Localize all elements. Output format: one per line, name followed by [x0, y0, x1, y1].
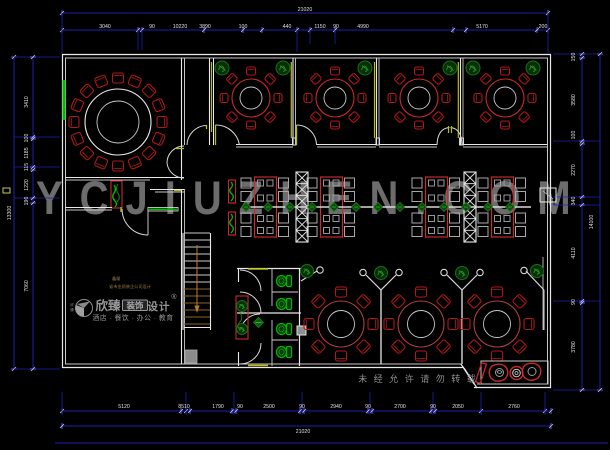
svg-text:440: 440 — [283, 24, 292, 30]
svg-text:3780: 3780 — [571, 341, 577, 353]
svg-text:4110: 4110 — [571, 247, 577, 258]
svg-text:欣臻: 欣臻 — [95, 298, 121, 313]
svg-text:90: 90 — [365, 404, 371, 410]
svg-text:115: 115 — [24, 163, 30, 171]
svg-text:14100: 14100 — [589, 215, 595, 230]
svg-text:10220: 10220 — [173, 24, 188, 30]
svg-text:90: 90 — [299, 404, 305, 410]
svg-text:3580: 3580 — [571, 94, 577, 106]
svg-text:340: 340 — [571, 197, 577, 206]
svg-text:5120: 5120 — [118, 404, 130, 410]
svg-text:3410: 3410 — [24, 96, 30, 108]
svg-text:鑫厦: 鑫厦 — [112, 275, 120, 282]
svg-text:90: 90 — [149, 24, 155, 30]
svg-text:4990: 4990 — [357, 24, 369, 30]
svg-text:1220: 1220 — [24, 179, 30, 191]
svg-text:90: 90 — [430, 404, 436, 410]
svg-text:欣: 欣 — [70, 302, 74, 307]
svg-text:设计: 设计 — [148, 300, 171, 313]
svg-text:13300: 13300 — [7, 206, 13, 221]
svg-text:190: 190 — [24, 197, 30, 206]
svg-text:3040: 3040 — [99, 24, 111, 30]
svg-text:90: 90 — [571, 299, 577, 305]
svg-text:2050: 2050 — [452, 404, 464, 410]
svg-text:21020: 21020 — [296, 429, 311, 435]
svg-text:200: 200 — [539, 24, 548, 30]
svg-text:1185: 1185 — [24, 147, 30, 158]
svg-text:2500: 2500 — [263, 404, 275, 410]
svg-text:2270: 2270 — [571, 164, 577, 176]
svg-text:100: 100 — [571, 131, 577, 140]
svg-text:1790: 1790 — [212, 404, 224, 410]
svg-text:5170: 5170 — [476, 24, 488, 30]
svg-text:未 经 允 许 请 勿 转 载: 未 经 允 许 请 勿 转 载 — [358, 373, 478, 384]
svg-text:省市金质装企公司设计: 省市金质装企公司设计 — [109, 283, 151, 290]
svg-text:100: 100 — [24, 134, 30, 143]
svg-text:2940: 2940 — [330, 404, 342, 410]
svg-text:90: 90 — [237, 404, 243, 410]
svg-text:90: 90 — [333, 24, 339, 30]
svg-text:7060: 7060 — [24, 280, 30, 292]
svg-text:臻: 臻 — [70, 307, 74, 312]
svg-text:8510: 8510 — [178, 404, 190, 410]
svg-text:®: ® — [171, 293, 177, 301]
svg-text:酒店 · 餐饮 · 办公 · 教育: 酒店 · 餐饮 · 办公 · 教育 — [93, 313, 174, 322]
svg-text:21020: 21020 — [298, 7, 313, 13]
svg-text:2760: 2760 — [508, 404, 520, 410]
svg-text:1150: 1150 — [314, 24, 325, 30]
svg-text:装饰: 装饰 — [125, 301, 144, 311]
svg-text:100: 100 — [239, 24, 248, 30]
svg-text:3890: 3890 — [199, 24, 211, 30]
svg-text:2700: 2700 — [394, 404, 406, 410]
svg-text:150: 150 — [571, 53, 577, 62]
